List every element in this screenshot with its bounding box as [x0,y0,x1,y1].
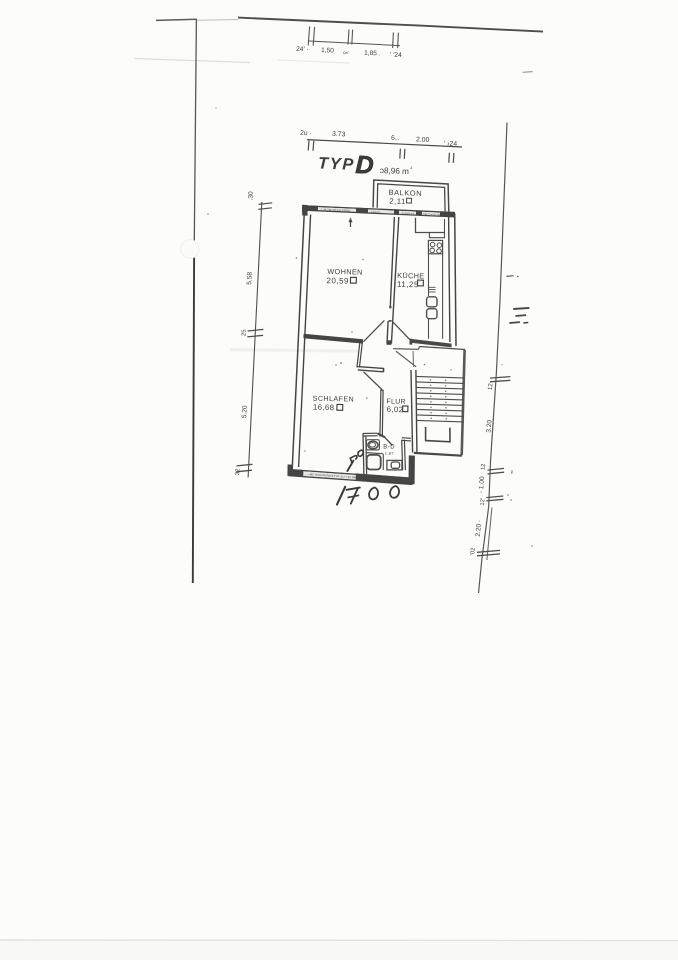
svg-text:6,02: 6,02 [387,405,404,414]
svg-text:′ ′24: ′ ′24 [390,52,402,59]
svg-text:12: 12 [481,463,488,470]
svg-text:1.87: 1.87 [385,451,394,456]
svg-text:′ ›24: ′ ›24 [444,140,457,148]
svg-text:ɔ8,96 m: ɔ8,96 m [380,166,410,176]
svg-text:- 1.00: - 1.00 [478,476,486,494]
svg-text:o»′: o»′ [343,50,349,55]
svg-text:12′: 12′ [480,498,487,506]
svg-text:11,25: 11,25 [397,280,419,289]
svg-text:25: 25 [241,329,247,337]
svg-text:2.00: 2.00 [416,136,430,144]
svg-text:· I.0××0 ·: · I.0××0 · [369,210,382,215]
svg-text:5.20: 5.20 [241,405,249,419]
svg-text:3.20: 3.20 [485,419,493,433]
svg-text:1,50: 1,50 [321,47,334,55]
svg-text:2υ ·: 2υ · [300,130,312,137]
svg-text:16,68: 16,68 [313,403,335,412]
svg-text:3.73: 3.73 [332,131,346,139]
svg-text:.30: .30 [247,191,254,201]
svg-text:′02: ′02 [470,547,477,555]
svg-text:· 6.0M××4 ·: · 6.0M××4 · [400,211,416,216]
svg-text:2.20 ·: 2.20 · [475,520,483,537]
svg-text:12·: 12· [487,381,495,390]
svg-text:5.58: 5.58 [246,272,254,286]
svg-text:24′ ·: 24′ · [296,46,309,54]
svg-text:D: D [355,151,374,180]
svg-text:0M77××ß⋅2M: 0M77××ß⋅2M [423,212,442,217]
svg-text:WOHNEN: WOHNEN [327,267,363,277]
svg-text:TYP: TYP [318,154,356,173]
svg-text:20,59: 20,59 [326,276,349,285]
svg-text:B-D: B-D [383,445,395,451]
svg-text:6‥: 6‥ [391,135,400,142]
svg-text:32: 32 [235,468,241,476]
svg-text:1,85 .: 1,85 . [364,50,381,58]
svg-text:2,11: 2,11 [389,197,406,207]
